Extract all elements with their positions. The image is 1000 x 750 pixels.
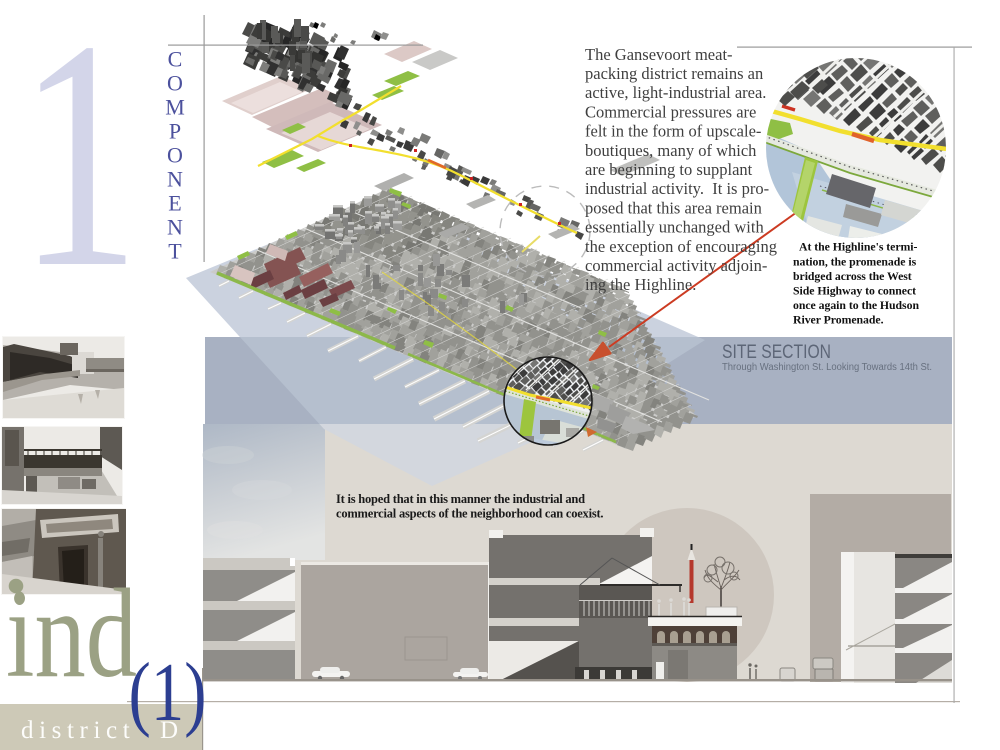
svg-text:N: N bbox=[167, 167, 183, 192]
svg-text:It is hoped that in this manne: It is hoped that in this manner the indu… bbox=[336, 492, 603, 521]
svg-text:N: N bbox=[167, 215, 183, 240]
svg-text:1: 1 bbox=[19, 0, 140, 336]
svg-text:O: O bbox=[167, 71, 183, 96]
svg-text:P: P bbox=[169, 119, 181, 144]
svg-text:Through Washington St. Looking: Through Washington St. Looking Towards 1… bbox=[722, 362, 932, 373]
svg-text:E: E bbox=[168, 191, 181, 216]
svg-text:C: C bbox=[168, 47, 183, 72]
svg-text:SITE SECTION: SITE SECTION bbox=[722, 342, 831, 363]
svg-text:ind: ind bbox=[6, 564, 137, 704]
svg-text:district: district bbox=[21, 717, 135, 744]
svg-text:T: T bbox=[168, 239, 182, 264]
svg-text:M: M bbox=[165, 95, 185, 120]
svg-text:O: O bbox=[167, 143, 183, 168]
svg-text:The Gansevoort meat-packing di: The Gansevoort meat-packing district rem… bbox=[585, 45, 777, 294]
svg-text:(1): (1) bbox=[129, 646, 207, 739]
